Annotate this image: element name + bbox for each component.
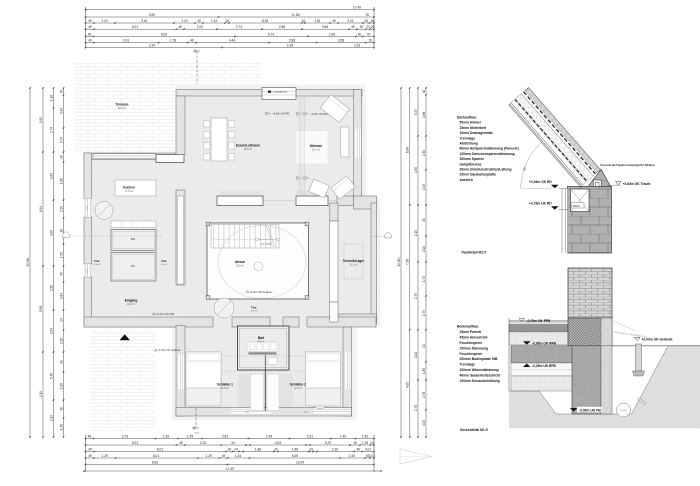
- svg-text:1.50: 1.50: [59, 252, 63, 258]
- svg-text:40mm Sauberkeitsschicht: 40mm Sauberkeitsschicht: [460, 374, 502, 378]
- svg-text:2.20: 2.20: [59, 206, 63, 212]
- svg-text:8.38: 8.38: [262, 19, 268, 23]
- svg-text:5.01: 5.01: [132, 441, 138, 445]
- svg-text:49: 49: [88, 454, 92, 458]
- svg-text:24: 24: [59, 318, 63, 322]
- svg-text:49: 49: [88, 447, 92, 451]
- svg-text:2.90: 2.90: [329, 32, 335, 36]
- svg-text:3.01: 3.01: [365, 447, 371, 451]
- svg-text:2.00: 2.00: [414, 352, 418, 358]
- svg-text:1.29: 1.29: [101, 454, 107, 458]
- svg-text:2.26: 2.26: [332, 447, 338, 451]
- svg-text:3.61: 3.61: [141, 19, 147, 23]
- svg-text:3.92: 3.92: [39, 117, 43, 123]
- svg-text:5.97: 5.97: [414, 109, 418, 115]
- svg-text:49: 49: [59, 360, 63, 364]
- svg-text:6.00: 6.00: [292, 454, 298, 458]
- svg-text:49: 49: [351, 25, 355, 29]
- svg-text:WM: WM: [131, 238, 135, 241]
- svg-text:24: 24: [231, 441, 235, 445]
- svg-text:2.81: 2.81: [222, 434, 228, 438]
- svg-text:200mm Bodenplatte StB: 200mm Bodenplatte StB: [460, 357, 499, 361]
- svg-text:76: 76: [367, 32, 371, 36]
- svg-text:120mm Zwischensparrendämmung: 120mm Zwischensparrendämmung: [460, 152, 515, 156]
- svg-text:Wohnen: Wohnen: [310, 144, 323, 148]
- svg-text:2.19: 2.19: [39, 391, 43, 397]
- svg-text:5.01: 5.01: [153, 454, 159, 458]
- svg-text:2.20: 2.20: [149, 43, 155, 47]
- svg-text:13.09: 13.09: [296, 460, 304, 464]
- svg-text:2.78: 2.78: [414, 405, 418, 411]
- svg-text:19.965: 19.965: [26, 257, 30, 267]
- svg-text:1.29: 1.29: [205, 454, 211, 458]
- svg-text:Kochen: Kochen: [123, 186, 135, 190]
- svg-text:45: 45: [88, 434, 92, 438]
- svg-text:60mm Aufsparrendämmung (Paneel: 60mm Aufsparrendämmung (Paneele): [460, 147, 519, 151]
- svg-text:1.34: 1.34: [235, 454, 241, 458]
- svg-text:-0.02m OK Gelände: -0.02m OK Gelände: [250, 291, 273, 294]
- svg-text:-0,25m OK FFB: -0,25m OK FFB: [527, 319, 551, 323]
- svg-text:Technik/Lager: Technik/Lager: [343, 259, 365, 263]
- svg-text:16: 16: [302, 19, 306, 23]
- svg-text:25: 25: [422, 218, 426, 222]
- svg-text:49: 49: [222, 454, 226, 458]
- svg-text:2.64: 2.64: [59, 293, 63, 299]
- svg-text:3.91: 3.91: [123, 39, 129, 43]
- svg-text:49: 49: [88, 25, 92, 29]
- svg-text:1.50: 1.50: [59, 424, 63, 430]
- svg-text:40: 40: [59, 90, 63, 94]
- svg-text:24: 24: [366, 25, 370, 29]
- svg-text:2.19: 2.19: [49, 415, 53, 421]
- svg-text:4.05: 4.05: [422, 420, 426, 426]
- svg-text:1.34: 1.34: [211, 19, 217, 23]
- svg-text:25mm Gipskartonplatte: 25mm Gipskartonplatte: [460, 173, 497, 177]
- svg-text:49: 49: [59, 155, 63, 159]
- svg-text:45: 45: [59, 272, 63, 276]
- svg-text:24: 24: [274, 447, 278, 451]
- svg-text:17.49: 17.49: [226, 467, 234, 471]
- svg-text:2.00: 2.00: [422, 246, 426, 252]
- svg-text:2.88: 2.88: [279, 25, 285, 29]
- svg-text:6.94: 6.94: [39, 206, 43, 212]
- svg-text:16.5 m²: 16.5 m²: [236, 265, 244, 268]
- svg-text:49: 49: [88, 19, 92, 23]
- svg-text:2.30: 2.30: [422, 150, 426, 156]
- svg-text:6.74: 6.74: [268, 32, 274, 36]
- svg-text:4.05: 4.05: [49, 230, 53, 236]
- svg-text:1.25: 1.25: [362, 441, 368, 445]
- svg-text:2.20: 2.20: [59, 338, 63, 344]
- svg-text:49: 49: [88, 39, 92, 43]
- svg-text:Bad: Bad: [258, 336, 264, 340]
- svg-text:25mm Parkett: 25mm Parkett: [460, 330, 483, 334]
- svg-text:2.74: 2.74: [49, 127, 53, 133]
- svg-text:7.38: 7.38: [406, 259, 410, 265]
- svg-text:8.60: 8.60: [152, 460, 158, 464]
- svg-text:45: 45: [88, 32, 92, 36]
- svg-text:9.8 m²: 9.8 m²: [251, 310, 257, 313]
- svg-text:2.30: 2.30: [414, 167, 418, 173]
- svg-text:1.88: 1.88: [255, 447, 261, 451]
- svg-text:6.84: 6.84: [406, 147, 410, 153]
- svg-text:3.58: 3.58: [322, 25, 328, 29]
- svg-text:Feuchtesperre: Feuchtesperre: [460, 352, 483, 356]
- svg-text:3.44: 3.44: [59, 108, 63, 114]
- svg-text:10mm Drainagematte: 10mm Drainagematte: [460, 131, 494, 135]
- svg-text:1.49: 1.49: [340, 434, 346, 438]
- svg-text:2.74: 2.74: [236, 25, 242, 29]
- svg-text:2.15: 2.15: [414, 230, 418, 236]
- svg-text:Dampfbremse: Dampfbremse: [460, 162, 482, 166]
- svg-text:50mm Klinker: 50mm Klinker: [460, 121, 482, 125]
- svg-text:4.3 m²: 4.3 m²: [161, 263, 167, 266]
- svg-text:16: 16: [368, 39, 372, 43]
- svg-text:26: 26: [371, 25, 375, 29]
- svg-text:26: 26: [364, 19, 368, 23]
- svg-text:1.49: 1.49: [187, 434, 193, 438]
- svg-text:2.20: 2.20: [49, 285, 53, 291]
- svg-text:17.8 m²: 17.8 m²: [125, 190, 133, 193]
- svg-text:16: 16: [59, 407, 63, 411]
- svg-text:16: 16: [353, 441, 357, 445]
- svg-text:Feuchtesperre: Feuchtesperre: [460, 341, 483, 345]
- svg-text:10.2 m²: 10.2 m²: [127, 303, 135, 306]
- svg-text:-0.04m OK Gelände: -0.04m OK Gelände: [158, 349, 181, 352]
- svg-text:Trennlage: Trennlage: [460, 136, 476, 140]
- svg-text:24: 24: [234, 447, 238, 451]
- svg-text:Trennlage: Trennlage: [460, 363, 476, 367]
- svg-text:24: 24: [370, 441, 374, 445]
- svg-text:49: 49: [332, 19, 336, 23]
- svg-text:4.63: 4.63: [275, 441, 281, 445]
- svg-text:12.4 m²: 12.4 m²: [294, 387, 302, 390]
- svg-text:100mm Kiesaufschüttung: 100mm Kiesaufschüttung: [460, 379, 500, 383]
- svg-text:Dachaufbau:: Dachaufbau:: [457, 116, 477, 120]
- svg-text:25mm Mörtelbett: 25mm Mörtelbett: [460, 126, 487, 130]
- svg-text:2.49: 2.49: [266, 434, 272, 438]
- svg-text:Schlafen 2: Schlafen 2: [290, 383, 306, 387]
- svg-text:16: 16: [225, 19, 229, 23]
- svg-text:11.1 m²: 11.1 m²: [350, 264, 358, 267]
- svg-text:31.2 m²: 31.2 m²: [312, 149, 320, 152]
- svg-text:3.76: 3.76: [122, 434, 128, 438]
- svg-text:100mm Dämmung: 100mm Dämmung: [460, 346, 488, 350]
- svg-text:200mm Wärmedämmung: 200mm Wärmedämmung: [460, 368, 499, 372]
- svg-text:1.78: 1.78: [170, 39, 176, 43]
- svg-text:Sockeldetail M1:5: Sockeldetail M1:5: [460, 428, 488, 432]
- svg-text:30°: 30°: [522, 165, 528, 172]
- svg-text:1.60: 1.60: [59, 178, 63, 184]
- svg-text:45.6 m²: 45.6 m²: [244, 148, 252, 151]
- svg-text:1.00: 1.00: [59, 383, 63, 389]
- svg-text:3.01: 3.01: [347, 19, 353, 23]
- svg-text:8.60: 8.60: [161, 32, 167, 36]
- svg-text:2.45: 2.45: [422, 184, 426, 190]
- svg-text:8.01: 8.01: [157, 447, 163, 451]
- svg-text:1.29: 1.29: [181, 19, 187, 23]
- svg-text:76: 76: [365, 13, 369, 17]
- svg-text:+0.00m OK FFB: +0.00m OK FFB: [156, 313, 174, 316]
- svg-text:49: 49: [190, 39, 194, 43]
- svg-text:19.507: 19.507: [397, 257, 401, 267]
- svg-text:WC: WC: [131, 265, 135, 268]
- svg-text:16: 16: [59, 229, 63, 233]
- svg-text:Anstrich: Anstrich: [460, 178, 473, 182]
- svg-text:1.72: 1.72: [422, 276, 426, 282]
- svg-text:1.88: 1.88: [292, 447, 298, 451]
- svg-text:2.28: 2.28: [287, 43, 293, 47]
- svg-text:Konsole (auf Sparren befestigt: Konsole (auf Sparren befestigt für Klink…: [601, 163, 655, 167]
- svg-text:40: 40: [422, 90, 426, 94]
- svg-text:+2.62m OK RFL: +2.62m OK RFL: [273, 113, 291, 116]
- svg-text:8.9 m²: 8.9 m²: [258, 341, 265, 344]
- svg-text:11.267: 11.267: [292, 13, 302, 17]
- svg-text:2.64: 2.64: [49, 328, 53, 334]
- svg-text:16x24: 16x24: [573, 204, 581, 208]
- svg-text:16: 16: [370, 19, 374, 23]
- svg-text:Essen/Luftraum: Essen/Luftraum: [236, 144, 260, 148]
- svg-text:12.6 m²: 12.6 m²: [221, 387, 229, 390]
- svg-text:1.29: 1.29: [101, 19, 107, 23]
- svg-text:+3,83m OK Traufe: +3,83m OK Traufe: [623, 182, 651, 186]
- svg-text:2.74: 2.74: [59, 137, 63, 143]
- svg-text:2.26: 2.26: [354, 43, 360, 47]
- svg-text:Flur: Flur: [94, 259, 100, 263]
- svg-text:40: 40: [358, 32, 362, 36]
- svg-text:Bodenaufbau:: Bodenaufbau:: [457, 325, 479, 329]
- svg-text:49: 49: [356, 447, 360, 451]
- svg-text:5.58: 5.58: [39, 306, 43, 312]
- svg-text:2.75: 2.75: [414, 293, 418, 299]
- svg-text:1.35: 1.35: [163, 434, 169, 438]
- svg-text:200mm Sparren: 200mm Sparren: [460, 157, 485, 161]
- svg-text:Terrasse: Terrasse: [115, 103, 128, 107]
- svg-text:1.18: 1.18: [49, 95, 53, 101]
- svg-text:2.26: 2.26: [200, 441, 206, 445]
- svg-text:45: 45: [178, 25, 182, 29]
- svg-text:24: 24: [422, 344, 426, 348]
- svg-text:52: 52: [360, 25, 364, 29]
- svg-text:+2.62m OK RFL: +2.62m OK RFL: [311, 113, 329, 116]
- svg-text:17.49: 17.49: [353, 6, 361, 10]
- svg-text:Traufdetail M1:5: Traufdetail M1:5: [461, 251, 486, 255]
- svg-text:Flur: Flur: [251, 306, 257, 310]
- svg-text:Eingang: Eingang: [125, 299, 138, 303]
- svg-text:-0,29m UK RFB: -0,29m UK RFB: [532, 364, 556, 368]
- svg-text:4.44: 4.44: [229, 39, 235, 43]
- svg-text:Atrium: Atrium: [235, 260, 245, 264]
- svg-text:4.05: 4.05: [406, 382, 410, 388]
- svg-text:1.51: 1.51: [314, 19, 320, 23]
- svg-text:5.90: 5.90: [149, 13, 155, 17]
- svg-text:40: 40: [228, 447, 232, 451]
- svg-text:1.54: 1.54: [349, 454, 355, 458]
- svg-text:2.51: 2.51: [307, 434, 313, 438]
- svg-text:-0,90m UK FM: -0,90m UK FM: [579, 408, 601, 412]
- svg-text:30mm Unterkonstruktion/Lattung: 30mm Unterkonstruktion/Lattung: [460, 168, 512, 172]
- svg-text:2.88: 2.88: [422, 112, 426, 118]
- svg-text:2.75: 2.75: [422, 310, 426, 316]
- svg-text:5.40: 5.40: [49, 373, 53, 379]
- svg-text:24: 24: [309, 447, 313, 451]
- svg-text:2.00: 2.00: [197, 25, 203, 29]
- svg-text:36.6 m²: 36.6 m²: [118, 107, 126, 110]
- svg-text:Drainage: Drainage: [620, 410, 627, 412]
- svg-text:1.85: 1.85: [422, 368, 426, 374]
- svg-text:3.6 m²: 3.6 m²: [94, 263, 100, 266]
- svg-text:Schlafen 1: Schlafen 1: [217, 383, 233, 387]
- svg-text:Abdichtung z.B. Schweißbahn 30: Abdichtung z.B. Schweißbahn 30cm: [614, 331, 648, 339]
- svg-text:-0,08m OK RFB: -0,08m OK RFB: [532, 341, 557, 345]
- svg-text:45mm Heizestrich: 45mm Heizestrich: [460, 335, 488, 339]
- svg-text:3.58: 3.58: [338, 39, 344, 43]
- svg-text:2.88: 2.88: [289, 39, 295, 43]
- svg-text:+2,78m UK RD: +2,78m UK RD: [529, 202, 552, 206]
- svg-text:2.01: 2.01: [369, 454, 375, 458]
- svg-text:Flur: Flur: [161, 259, 167, 263]
- svg-text:5.29: 5.29: [325, 441, 331, 445]
- svg-text:2.64: 2.64: [49, 173, 53, 179]
- svg-text:49: 49: [197, 19, 201, 23]
- svg-text:5.01: 5.01: [132, 25, 138, 29]
- svg-text:0.64: 0.64: [195, 433, 200, 435]
- svg-text:6 x 17/29: 6 x 17/29: [261, 244, 271, 246]
- svg-text:Abdichtung: Abdichtung: [460, 142, 478, 146]
- svg-text:+2,94m OK RD: +2,94m OK RD: [529, 180, 552, 184]
- svg-text:2.78: 2.78: [422, 392, 426, 398]
- svg-text:1.50: 1.50: [362, 434, 368, 438]
- svg-text:49: 49: [179, 441, 183, 445]
